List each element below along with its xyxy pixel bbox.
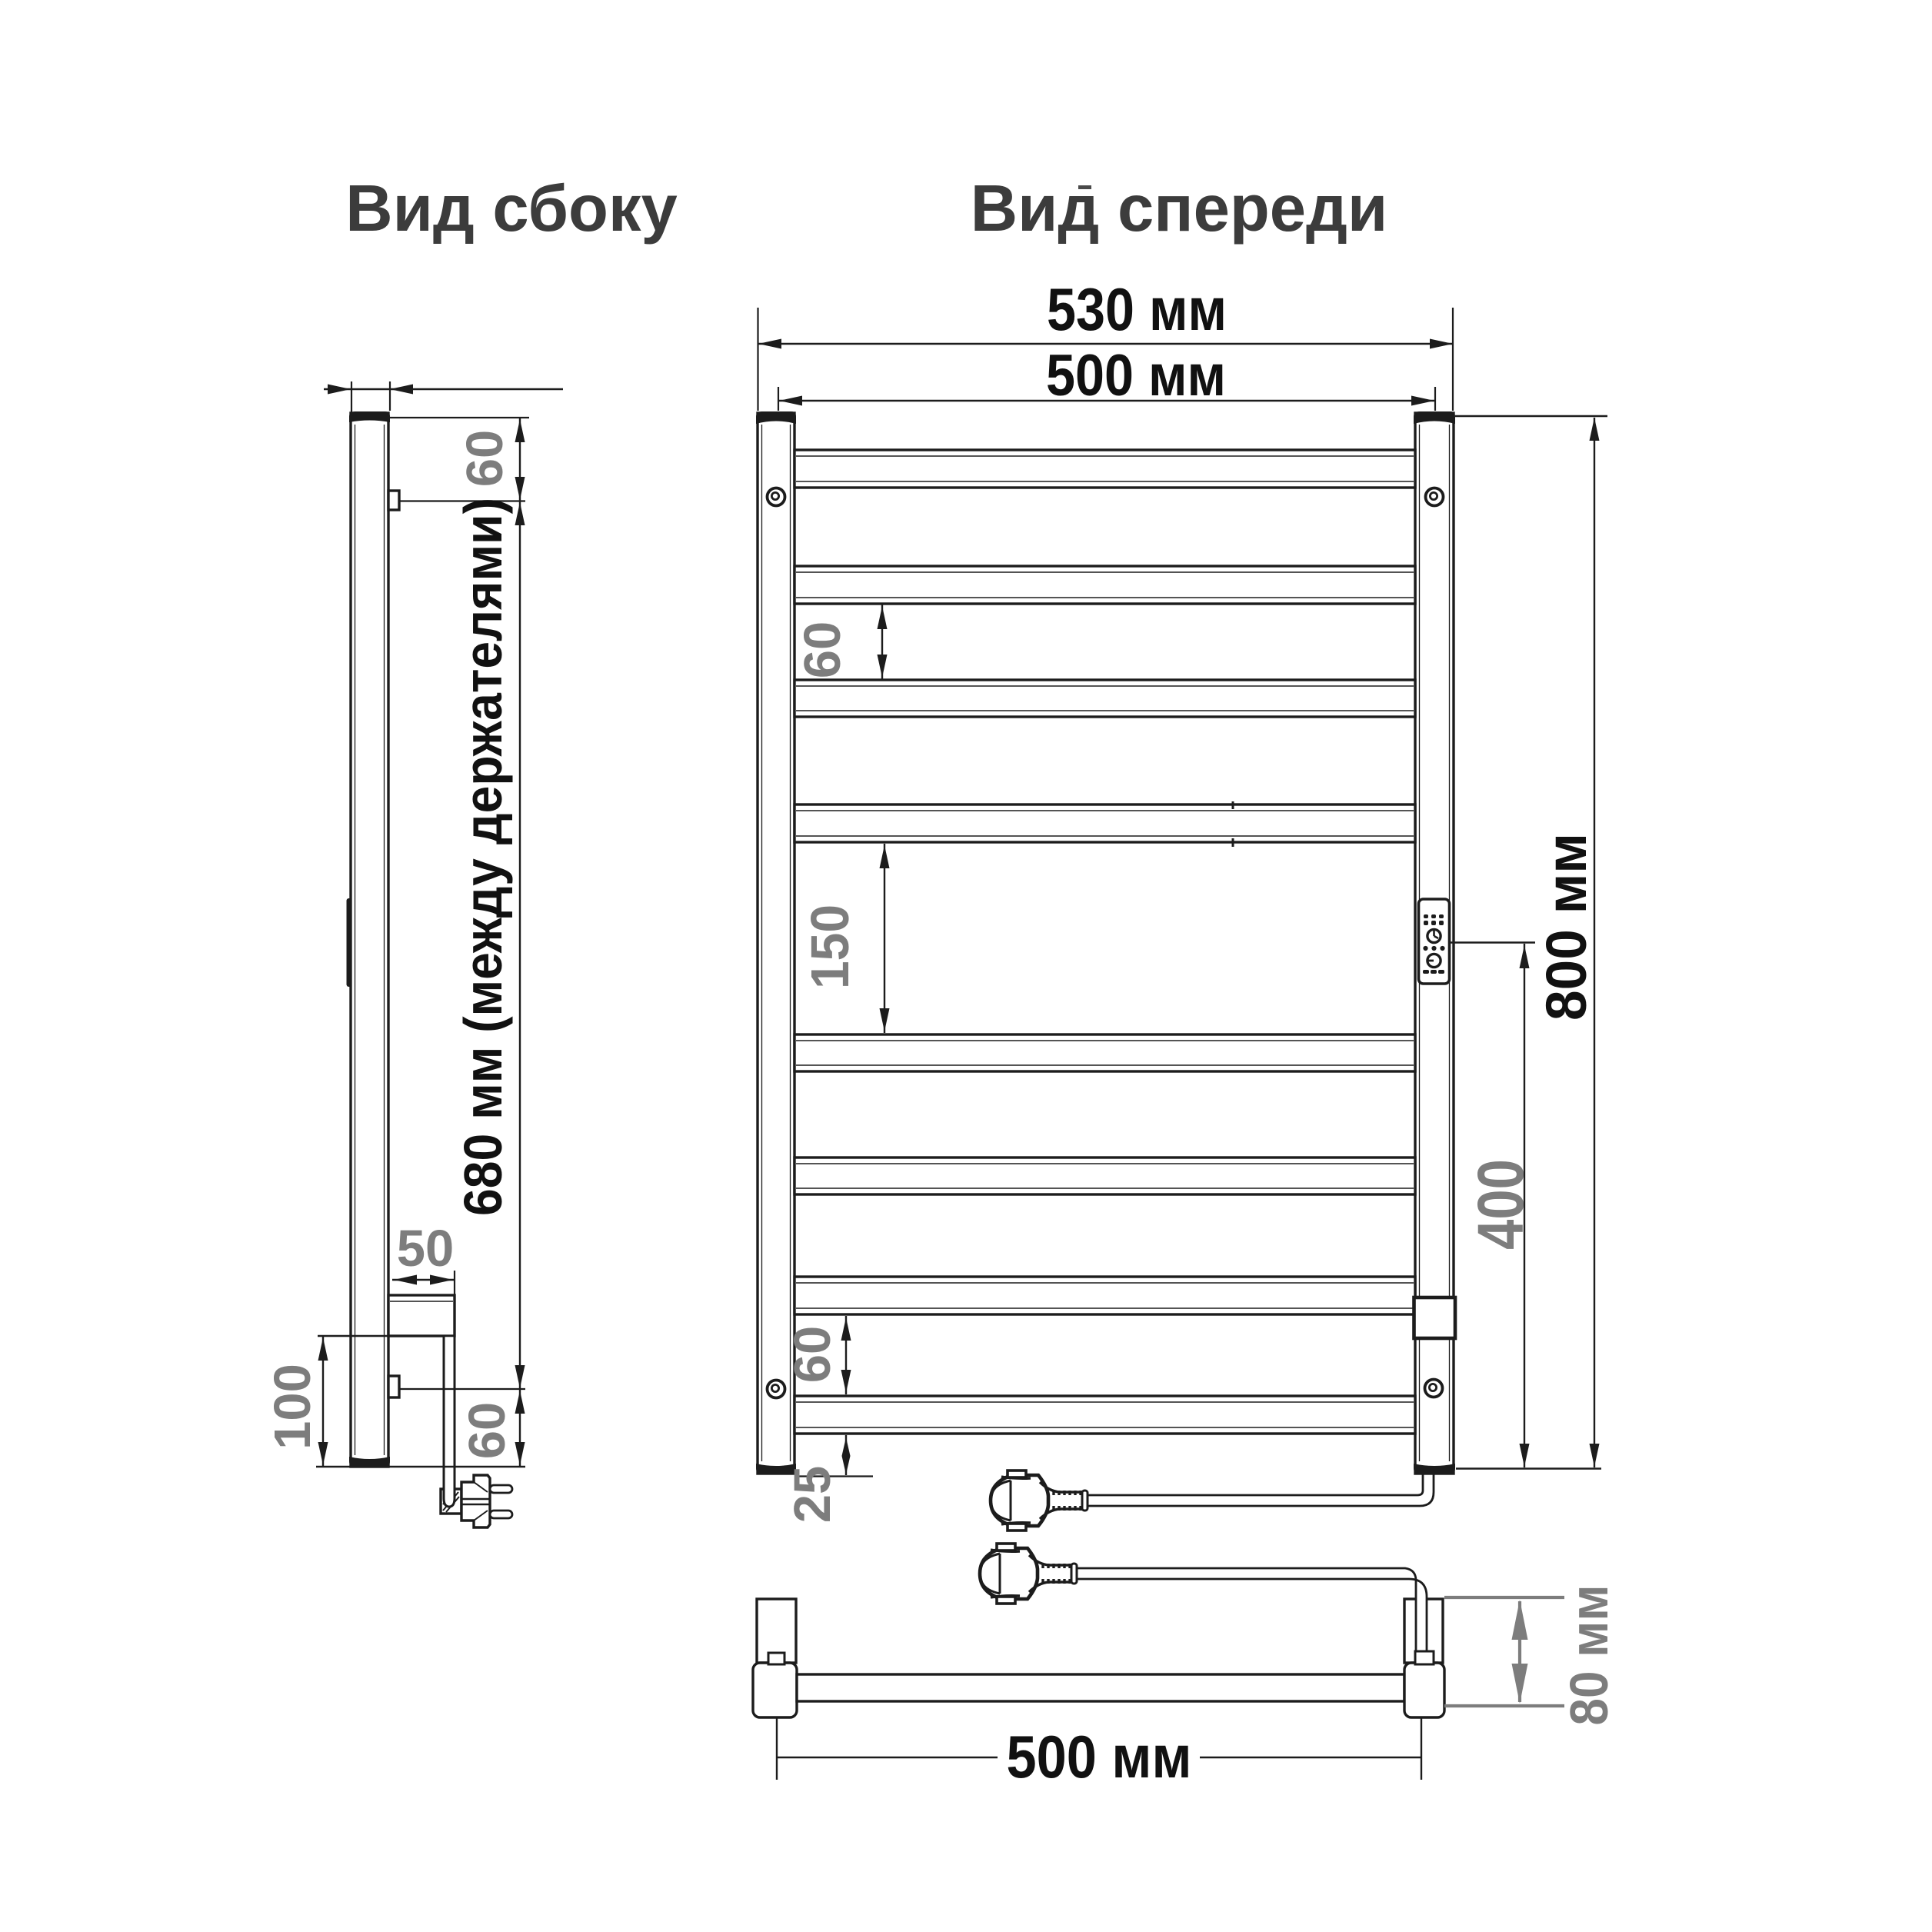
svg-text:530 мм: 530 мм <box>1047 275 1227 343</box>
svg-text:Вид спереди: Вид спереди <box>971 172 1388 245</box>
svg-text:500 мм: 500 мм <box>1007 1723 1192 1790</box>
svg-text:50: 50 <box>397 1220 455 1277</box>
svg-text:400: 400 <box>1464 1159 1537 1250</box>
svg-text:680 мм (между держателями): 680 мм (между держателями) <box>453 498 513 1216</box>
svg-text:800 мм: 800 мм <box>1534 833 1598 1021</box>
svg-text:Вид сбоку: Вид сбоку <box>345 172 678 245</box>
svg-text:60: 60 <box>458 1402 516 1460</box>
svg-text:80 мм: 80 мм <box>1559 1585 1619 1726</box>
svg-text:60: 60 <box>456 430 514 488</box>
svg-text:60: 60 <box>784 1326 841 1384</box>
svg-text:25: 25 <box>784 1466 841 1524</box>
svg-text:60: 60 <box>794 621 851 679</box>
svg-text:150: 150 <box>800 904 860 989</box>
svg-text:500 мм: 500 мм <box>1046 343 1226 408</box>
svg-text:100: 100 <box>264 1364 321 1450</box>
